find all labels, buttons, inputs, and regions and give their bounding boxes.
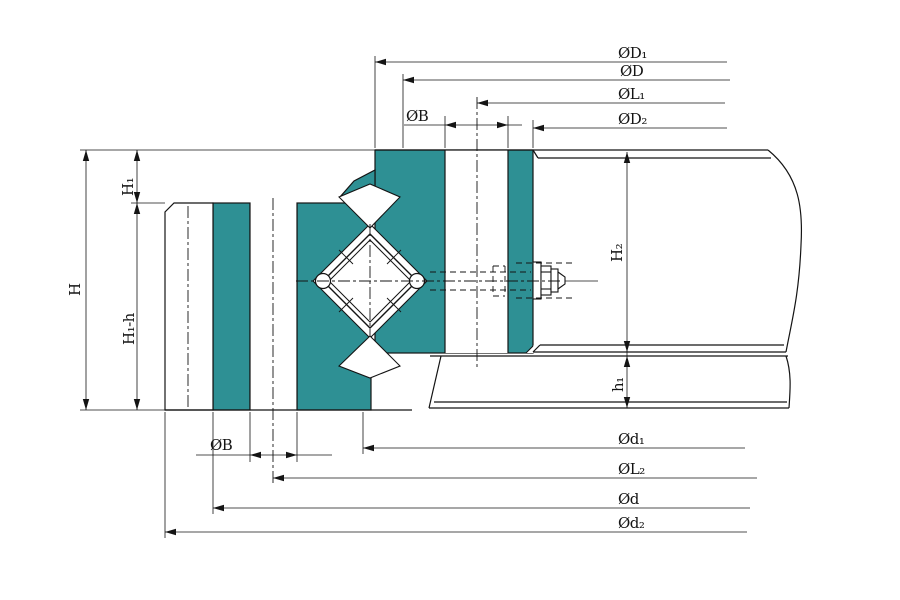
outer-ring-bolt-hole: [445, 150, 508, 353]
technical-drawing-canvas: ØD₁ ØD ØL₁ ØD₂ Ød₁ ØL₂ Ød Ød₂ H₁ H H₁-h …: [0, 0, 900, 600]
label-height-2: H₂: [608, 243, 626, 262]
label-height-1: H₁: [119, 178, 137, 196]
break-line-lower: [786, 356, 790, 408]
inner-ring-bolt-hole: [250, 203, 297, 410]
break-line-upper: [768, 150, 801, 352]
label-outer-diameter-1: ØD₁: [618, 44, 647, 62]
label-outer-diameter: ØD: [620, 62, 644, 80]
label-bolt-circle-1: ØL₁: [618, 85, 645, 103]
label-bolt-circle-2: ØL₂: [618, 460, 645, 478]
label-bore-top: ØB: [406, 107, 429, 125]
nipple-tip: [558, 272, 565, 289]
label-bore-bottom: ØB: [210, 436, 233, 454]
label-inner-diameter-2: Ød₂: [618, 514, 645, 532]
label-outer-diameter-2: ØD₂: [618, 110, 647, 128]
label-total-height: H: [66, 283, 84, 296]
slewing-bearing-section-drawing: ØD₁ ØD ØL₁ ØD₂ Ød₁ ØL₂ Ød Ød₂ H₁ H H₁-h …: [0, 0, 900, 600]
grease-nipple: [533, 262, 598, 299]
label-height-h1: h₁: [609, 377, 627, 392]
inner-ring-left-piece: [213, 203, 250, 410]
flange-piece: [165, 203, 213, 410]
label-inner-diameter: Ød: [618, 490, 640, 508]
label-inner-diameter-1: Ød₁: [618, 430, 644, 448]
label-height-1-minus-h: H₁-h: [120, 312, 138, 345]
